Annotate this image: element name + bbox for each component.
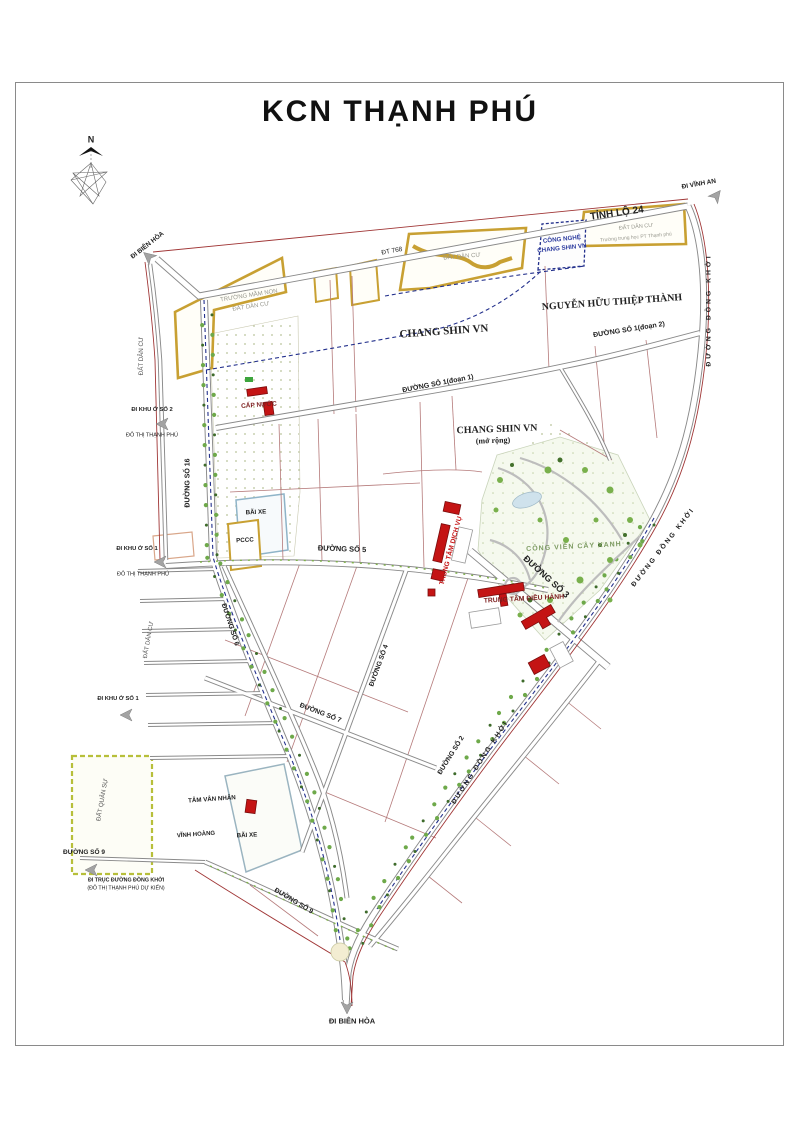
ttdv-outline-building xyxy=(451,527,472,563)
arrow-di-bien-hoa-top xyxy=(140,248,157,265)
parcel-bai-xe-bottom xyxy=(225,764,302,872)
tam-van-nhan-building xyxy=(245,799,257,813)
compass-rose xyxy=(71,147,107,204)
ttdv-building-2 xyxy=(433,524,450,563)
ttdh-building-stub xyxy=(499,593,508,606)
roads xyxy=(80,206,704,1006)
ttdv-building-3 xyxy=(431,569,445,581)
map-page: KCN THẠNH PHÚ xyxy=(0,0,800,1130)
ttdv-building-1 xyxy=(443,501,461,514)
ttdv-building-4 xyxy=(428,589,435,596)
arrow-di-khu-o-1b xyxy=(120,709,132,721)
arrow-di-vinh-an xyxy=(708,187,725,204)
cap-nuoc-building-2 xyxy=(263,401,274,415)
site-map xyxy=(0,0,800,1130)
ttdh-outline-building-1 xyxy=(469,608,501,628)
junction-circle xyxy=(331,943,349,961)
cap-nuoc-green-plot xyxy=(245,377,253,382)
